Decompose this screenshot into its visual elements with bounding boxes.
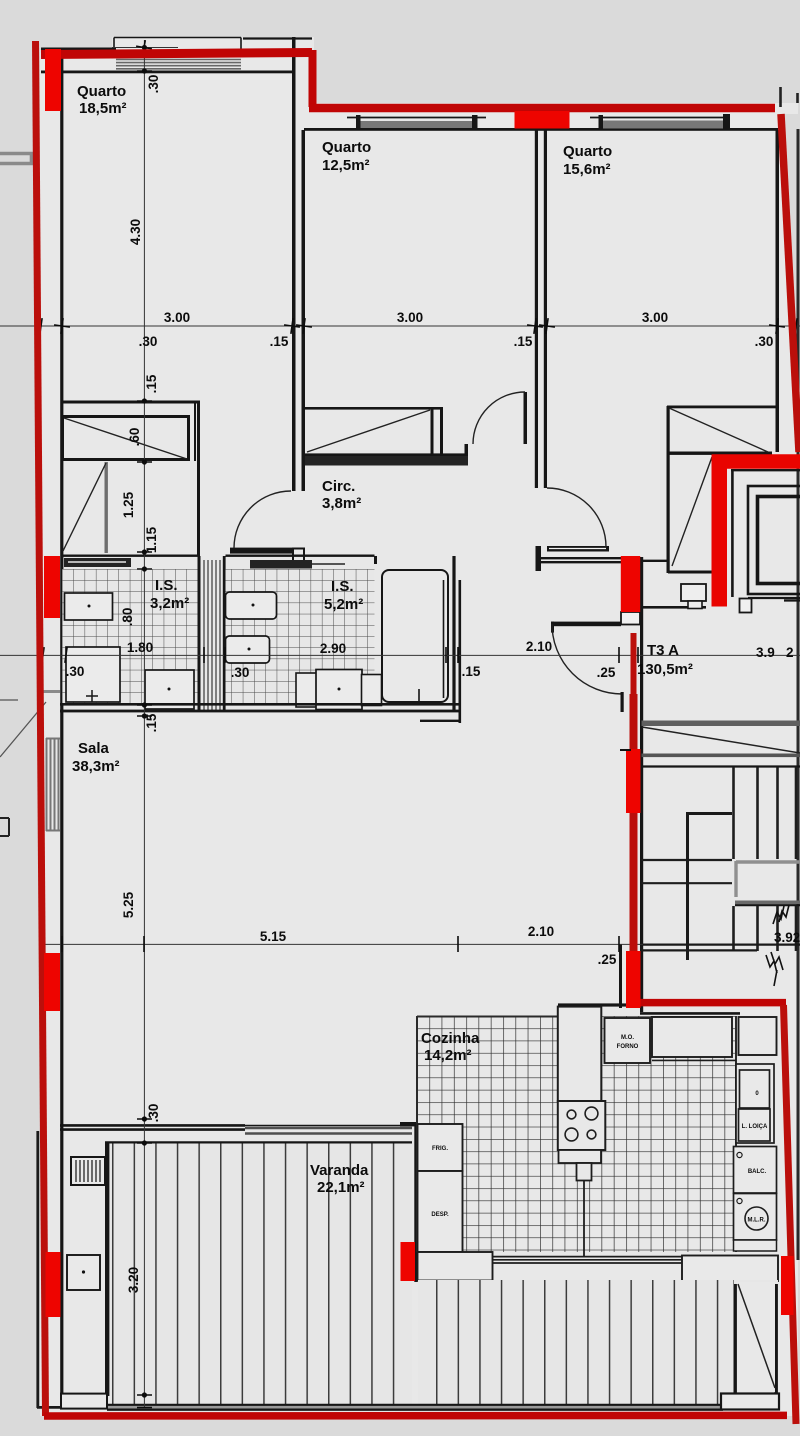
svg-text:.15: .15 bbox=[462, 664, 481, 679]
svg-text:.60: .60 bbox=[127, 428, 142, 447]
svg-text:Quarto: Quarto bbox=[77, 83, 126, 100]
svg-text:.80: .80 bbox=[120, 608, 135, 627]
svg-text:1.80: 1.80 bbox=[127, 640, 153, 655]
svg-text:3,2m²: 3,2m² bbox=[150, 595, 189, 612]
svg-text:.30: .30 bbox=[231, 665, 250, 680]
svg-text:3.00: 3.00 bbox=[642, 310, 668, 325]
svg-text:.15: .15 bbox=[270, 334, 289, 349]
svg-text:3.92: 3.92 bbox=[774, 930, 800, 945]
svg-text:Varanda: Varanda bbox=[310, 1162, 369, 1179]
svg-text:.15: .15 bbox=[144, 374, 159, 393]
svg-text:M.O.: M.O. bbox=[621, 1035, 634, 1041]
svg-text:3.9: 3.9 bbox=[756, 645, 775, 660]
svg-text:.30: .30 bbox=[139, 334, 158, 349]
svg-text:3.00: 3.00 bbox=[397, 310, 423, 325]
svg-text:5,2m²: 5,2m² bbox=[324, 596, 363, 613]
svg-text:5.25: 5.25 bbox=[121, 891, 136, 918]
svg-text:L. LOIÇA: L. LOIÇA bbox=[742, 1124, 768, 1130]
svg-text:2.90: 2.90 bbox=[320, 641, 346, 656]
svg-text:.25: .25 bbox=[597, 665, 616, 680]
svg-text:2.10: 2.10 bbox=[528, 924, 554, 939]
svg-text:14,2m²: 14,2m² bbox=[424, 1047, 472, 1064]
svg-text:3,8m²: 3,8m² bbox=[322, 495, 361, 512]
svg-text:5.15: 5.15 bbox=[260, 929, 287, 944]
svg-text:Circ.: Circ. bbox=[322, 478, 355, 495]
svg-text:Cozinha: Cozinha bbox=[421, 1030, 480, 1047]
svg-text:38,3m²: 38,3m² bbox=[72, 758, 120, 775]
svg-text:.30: .30 bbox=[66, 664, 85, 679]
svg-text:Quarto: Quarto bbox=[322, 139, 371, 156]
svg-text:FORNO: FORNO bbox=[617, 1044, 639, 1050]
svg-text:Sala: Sala bbox=[78, 740, 110, 757]
svg-text:15,6m²: 15,6m² bbox=[563, 161, 611, 178]
svg-text:Quarto: Quarto bbox=[563, 143, 612, 160]
svg-text:BALC.: BALC. bbox=[748, 1169, 767, 1175]
svg-text:2.10: 2.10 bbox=[526, 639, 552, 654]
svg-text:.15: .15 bbox=[514, 334, 533, 349]
svg-text:22,1m²: 22,1m² bbox=[317, 1179, 365, 1196]
svg-text:.30: .30 bbox=[755, 334, 774, 349]
svg-text:3.00: 3.00 bbox=[164, 310, 190, 325]
svg-text:1.15: 1.15 bbox=[144, 526, 159, 553]
svg-text:T3 A: T3 A bbox=[647, 642, 679, 659]
svg-text:.30: .30 bbox=[146, 75, 161, 94]
svg-text:.25: .25 bbox=[598, 952, 617, 967]
svg-text:.15: .15 bbox=[144, 713, 159, 732]
svg-text:4.30: 4.30 bbox=[128, 219, 143, 245]
svg-text:1.25: 1.25 bbox=[121, 491, 136, 518]
svg-text:130,5m²: 130,5m² bbox=[637, 661, 693, 678]
svg-text:FRIG.: FRIG. bbox=[432, 1146, 448, 1152]
svg-text:12,5m²: 12,5m² bbox=[322, 157, 370, 174]
svg-text:3.20: 3.20 bbox=[126, 1267, 141, 1293]
svg-text:I.S.: I.S. bbox=[331, 578, 354, 595]
svg-text:DESP.: DESP. bbox=[431, 1212, 449, 1218]
svg-text:2: 2 bbox=[786, 645, 794, 660]
svg-text:M.L.R.: M.L.R. bbox=[748, 1218, 766, 1224]
svg-text:I.S.: I.S. bbox=[155, 577, 178, 594]
svg-text:.30: .30 bbox=[146, 1104, 161, 1123]
svg-text:18,5m²: 18,5m² bbox=[79, 100, 127, 117]
